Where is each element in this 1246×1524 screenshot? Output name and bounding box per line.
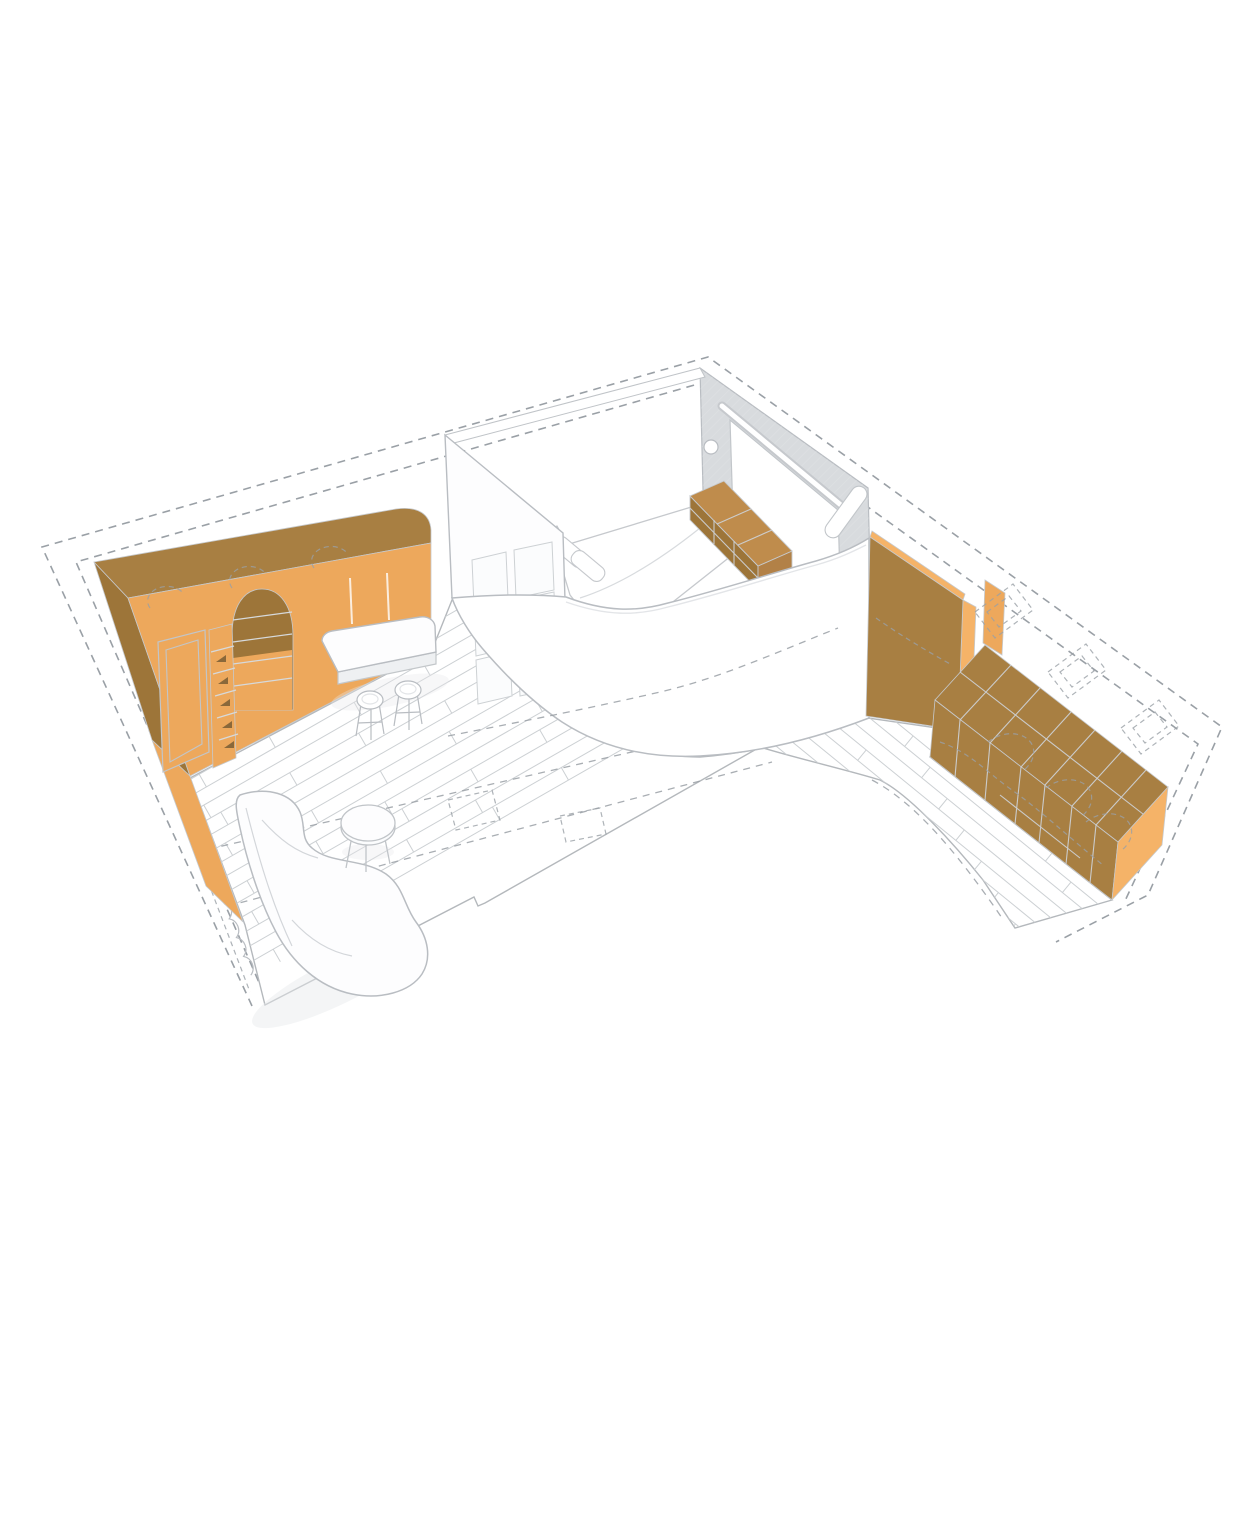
apartment-axon-illustration xyxy=(0,0,1246,1524)
secondary-panel xyxy=(983,580,1005,655)
wall-porthole xyxy=(704,440,718,454)
arched-niche xyxy=(232,589,293,710)
cabinet-door xyxy=(158,630,209,772)
bedroom-rear-wall-edge xyxy=(445,368,705,444)
apartment-axon-view xyxy=(0,0,1246,1524)
book-cubbies xyxy=(209,624,238,768)
